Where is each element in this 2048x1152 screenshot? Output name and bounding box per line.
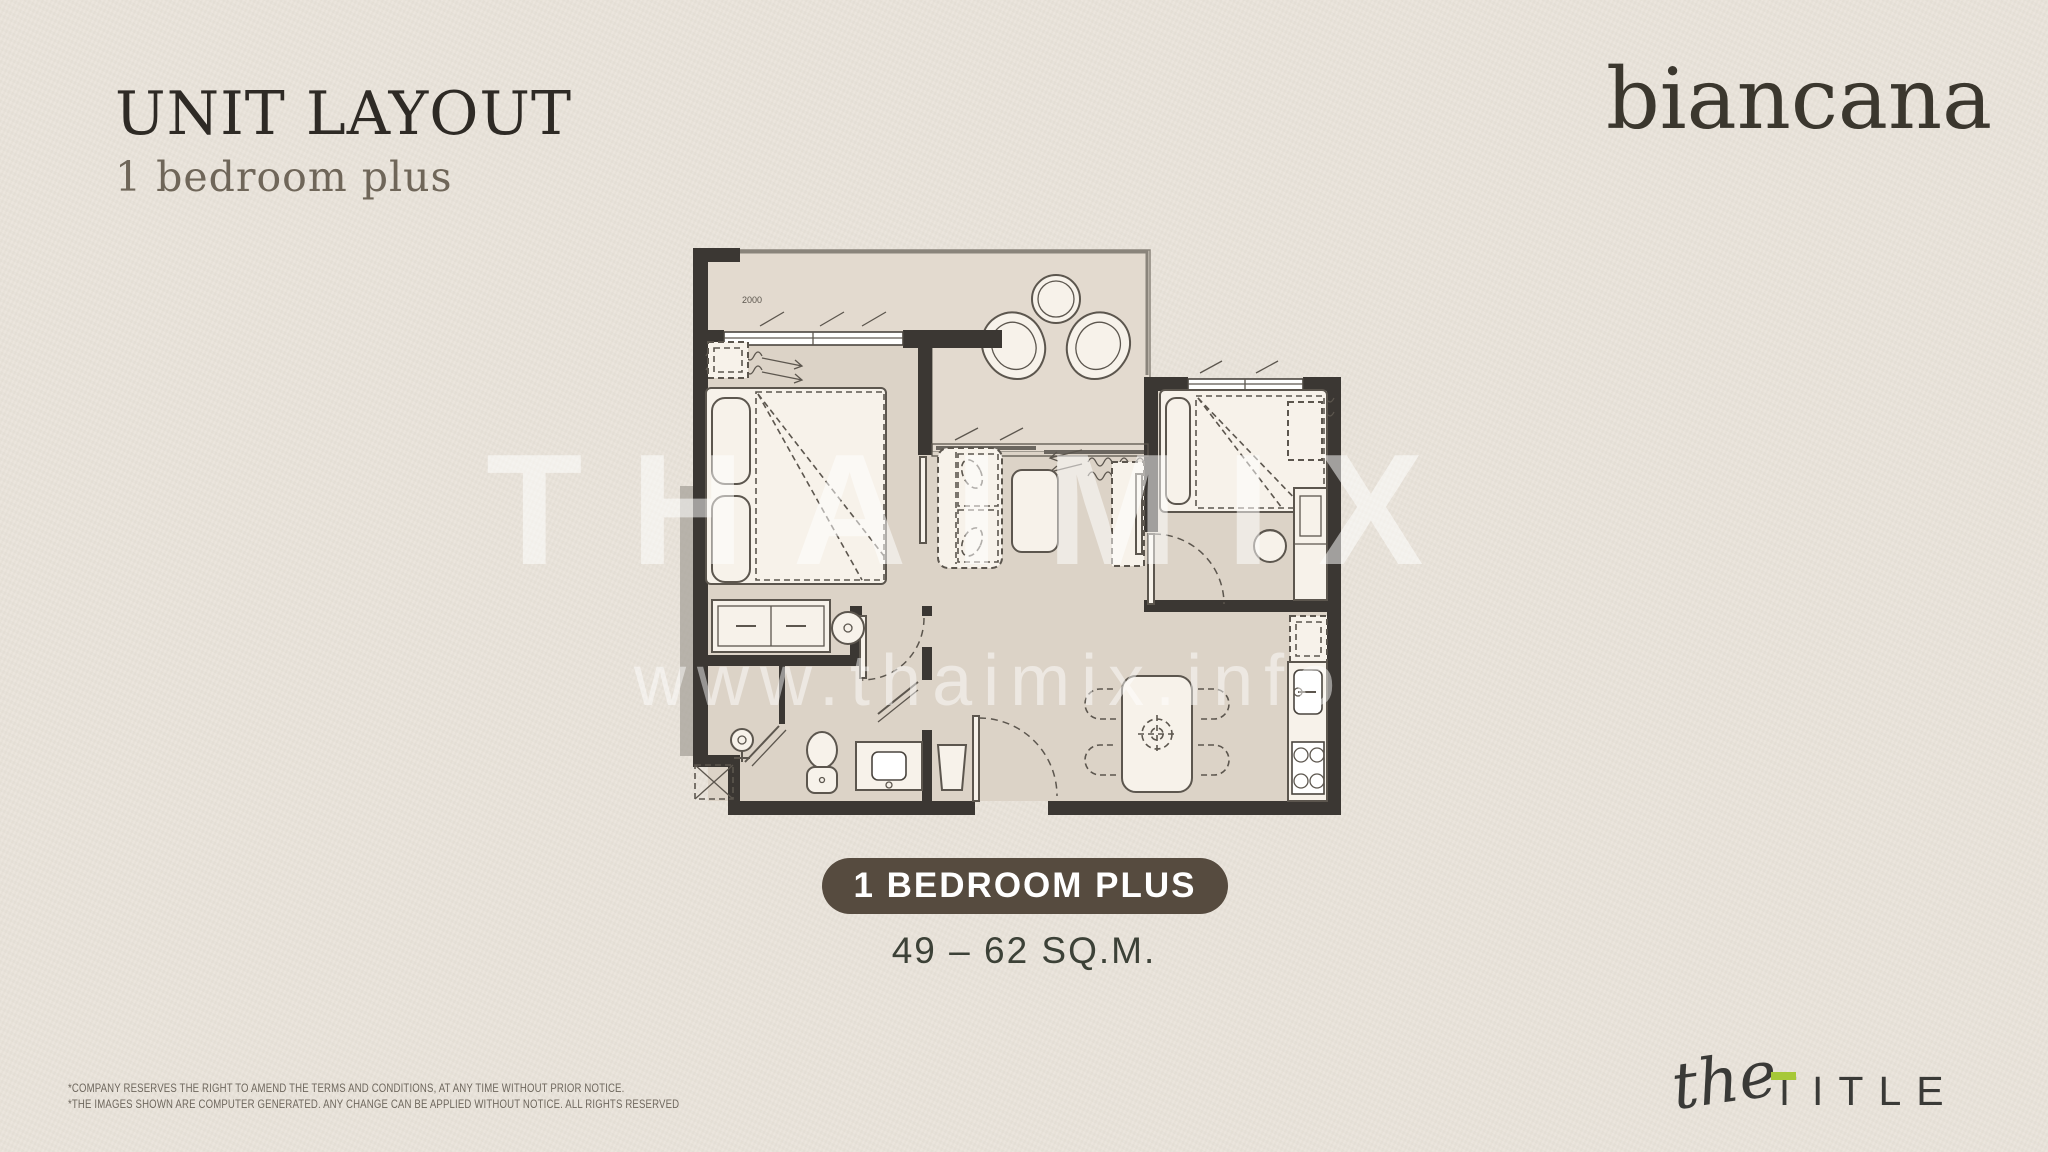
dresser-icon — [712, 600, 830, 652]
stove-icon — [1292, 742, 1324, 794]
master-sliding-door — [920, 457, 926, 543]
dining-table-icon — [1122, 676, 1192, 792]
kitchen — [1288, 616, 1327, 801]
unit-layout-poster: UNIT LAYOUT 1 bedroom plus biancana — [0, 0, 2048, 1152]
coffee-table-icon — [1012, 470, 1058, 552]
dimension-label: 2000 — [742, 295, 762, 305]
desk-icon — [1294, 488, 1327, 600]
shower-icon — [731, 729, 753, 762]
balcony-table-icon — [1032, 275, 1080, 323]
second-bedroom-window — [1188, 361, 1303, 390]
laundry-hamper-icon — [938, 745, 966, 790]
disclaimer: *COMPANY RESERVES THE RIGHT TO AMEND THE… — [68, 1080, 679, 1112]
exterior-shading — [680, 486, 693, 756]
vanity-sink-icon — [856, 742, 922, 790]
floor-plan: 2000 — [0, 0, 2048, 1152]
disclaimer-line-1: *COMPANY RESERVES THE RIGHT TO AMEND THE… — [68, 1080, 679, 1096]
double-bed-icon — [706, 388, 886, 584]
developer-logo-accent-bar — [1771, 1072, 1796, 1080]
disclaimer-line-2: *THE IMAGES SHOWN ARE COMPUTER GENERATED… — [68, 1096, 679, 1112]
chair-icon — [1254, 530, 1286, 562]
unit-type-badge: 1 BEDROOM PLUS — [822, 858, 1228, 914]
tv-console-icon — [1112, 462, 1144, 566]
toilet-icon — [807, 732, 837, 793]
developer-logo-caps: TITLE — [1772, 1068, 1959, 1115]
unit-type-badge-label: 1 BEDROOM PLUS — [853, 866, 1196, 906]
developer-logo-script: the — [1667, 1037, 1781, 1125]
sofa-icon — [938, 448, 1002, 568]
unit-area-text: 49 – 62 SQ.M. — [0, 930, 2048, 972]
stool-icon — [832, 612, 864, 644]
sink-icon — [1294, 670, 1322, 714]
